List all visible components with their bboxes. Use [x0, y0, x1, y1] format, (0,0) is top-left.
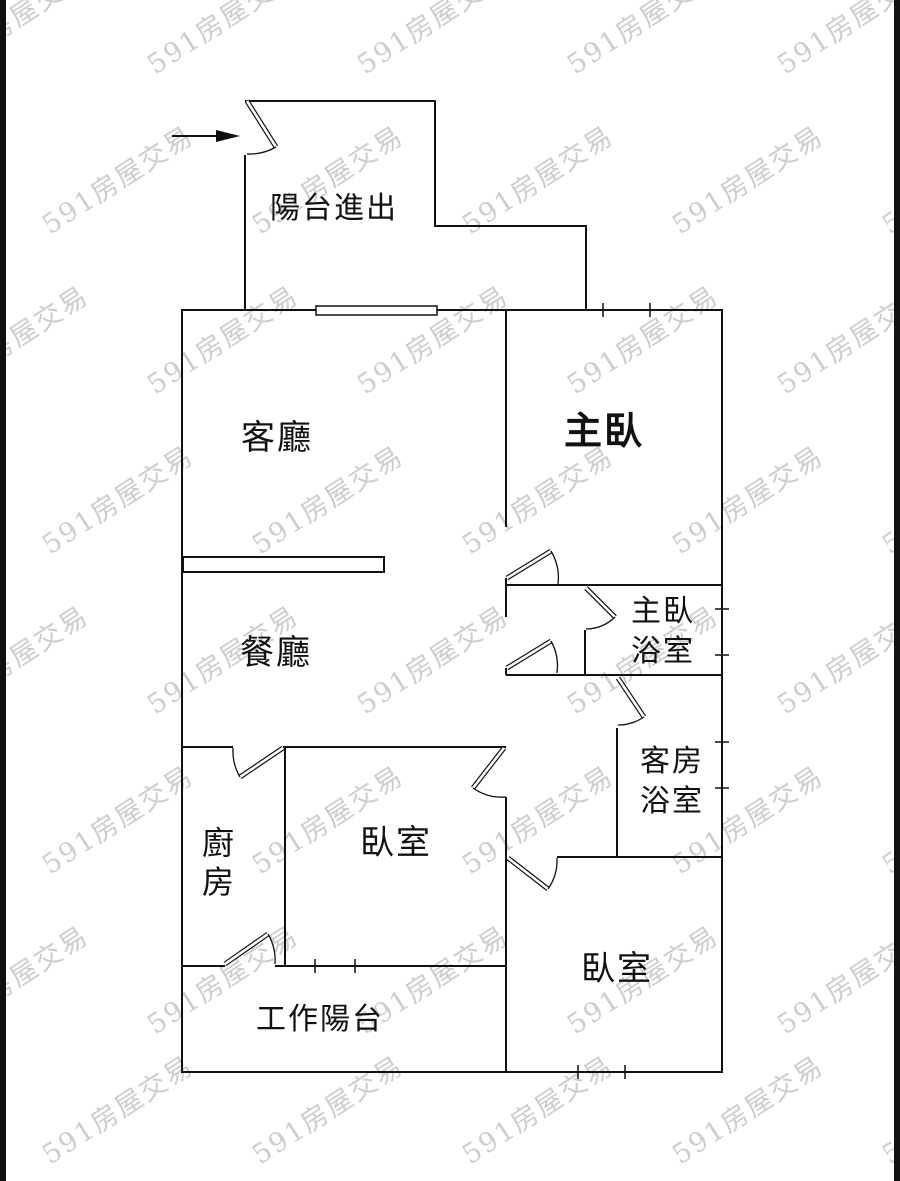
watermark-text: 591房屋交易	[142, 0, 304, 81]
half-wall-counter	[183, 557, 384, 572]
room-label-master-bathroom-line2: 浴室	[631, 634, 695, 669]
watermark-text: 591房屋交易	[37, 120, 199, 241]
watermark-text: 591房屋交易	[772, 280, 900, 401]
watermark-text: 591房屋交易	[37, 1050, 199, 1171]
watermark-text: 591房屋交易	[772, 0, 900, 81]
room-label-balcony-entry: 陽台進出	[270, 191, 398, 226]
floor-plan-image: 591房屋交易 591房屋交易 591房屋交易 591房屋交易 591房屋交易 …	[0, 0, 900, 1181]
door-master-bathroom-icon	[586, 588, 615, 629]
door-bedroom-left-icon	[473, 748, 506, 797]
watermark-text: 591房屋交易	[457, 120, 619, 241]
window-living-room	[316, 306, 437, 315]
watermark-text: 591房屋交易	[772, 920, 900, 1041]
image-border-left	[0, 0, 6, 1181]
watermark-text: 591房屋交易	[667, 1050, 829, 1171]
watermark-text: 591房屋交易	[247, 1050, 409, 1171]
room-label-bedroom-right: 臥室	[581, 949, 653, 989]
door-balcony-entry-icon	[247, 101, 276, 154]
watermark-text: 591房屋交易	[772, 600, 900, 721]
room-label-guest-bathroom-line2: 浴室	[640, 784, 704, 819]
room-label-living-room: 客廳	[241, 418, 313, 458]
door-closet-icon	[507, 641, 557, 673]
watermark-layer: 591房屋交易 591房屋交易 591房屋交易 591房屋交易 591房屋交易 …	[0, 0, 900, 1171]
door-master-bedroom-icon	[507, 551, 558, 584]
watermark-text: 591房屋交易	[0, 0, 94, 81]
floor-plan-canvas: 591房屋交易 591房屋交易 591房屋交易 591房屋交易 591房屋交易 …	[0, 0, 900, 1181]
watermark-text: 591房屋交易	[37, 440, 199, 561]
watermark-text: 591房屋交易	[352, 600, 514, 721]
watermark-text: 591房屋交易	[562, 0, 724, 81]
room-label-kitchen-line1: 廚	[202, 824, 234, 862]
watermark-text: 591房屋交易	[142, 280, 304, 401]
room-label-kitchen-line2: 房	[202, 863, 234, 901]
watermark-text: 591房屋交易	[352, 280, 514, 401]
room-label-work-balcony: 工作陽台	[256, 1002, 384, 1037]
watermark-text: 591房屋交易	[0, 920, 94, 1041]
watermark-text: 591房屋交易	[37, 760, 199, 881]
walls-layer	[182, 101, 722, 1072]
room-label-master-bathroom-line1: 主臥	[631, 594, 695, 629]
watermark-text: 591房屋交易	[0, 600, 94, 721]
image-border-right	[894, 0, 900, 1181]
room-label-master-bedroom: 主臥	[564, 408, 644, 453]
room-label-guest-bathroom-line1: 客房	[640, 744, 704, 779]
watermark-text: 591房屋交易	[457, 440, 619, 561]
door-bedroom-right-icon	[508, 858, 557, 889]
room-label-dining-room: 餐廳	[240, 633, 312, 673]
door-kitchen-top-icon	[233, 748, 283, 777]
watermark-text: 591房屋交易	[247, 440, 409, 561]
watermark-text: 591房屋交易	[0, 280, 94, 401]
room-label-bedroom-left: 臥室	[360, 823, 432, 863]
watermark-text: 591房屋交易	[667, 120, 829, 241]
watermark-text: 591房屋交易	[352, 0, 514, 81]
watermark-text: 591房屋交易	[457, 1050, 619, 1171]
watermark-text: 591房屋交易	[667, 440, 829, 561]
